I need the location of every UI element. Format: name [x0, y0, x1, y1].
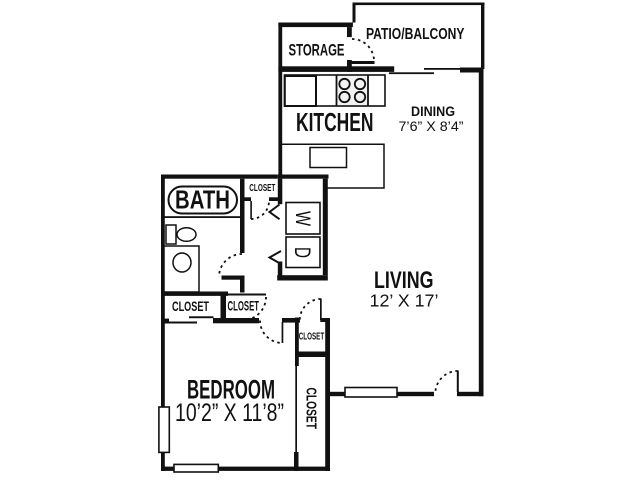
- svg-text:CLOSET: CLOSET: [172, 298, 209, 314]
- svg-text:12’ X 17’: 12’ X 17’: [370, 291, 439, 311]
- svg-text:CLOSET: CLOSET: [303, 388, 319, 430]
- svg-text:CLOSET: CLOSET: [228, 298, 260, 314]
- svg-text:7’6” X 8’4”: 7’6” X 8’4”: [399, 118, 464, 134]
- svg-text:W: W: [291, 211, 315, 227]
- svg-text:KITCHEN: KITCHEN: [296, 109, 374, 137]
- svg-text:CLOSET: CLOSET: [299, 332, 325, 343]
- svg-text:10’2” X 11’8”: 10’2” X 11’8”: [175, 399, 284, 427]
- svg-text:BATH: BATH: [175, 185, 230, 215]
- svg-text:D: D: [290, 247, 315, 258]
- svg-text:STORAGE: STORAGE: [289, 42, 345, 60]
- svg-text:CLOSET: CLOSET: [249, 183, 275, 194]
- svg-text:PATIO/BALCONY: PATIO/BALCONY: [366, 26, 465, 43]
- svg-text:DINING: DINING: [411, 103, 455, 119]
